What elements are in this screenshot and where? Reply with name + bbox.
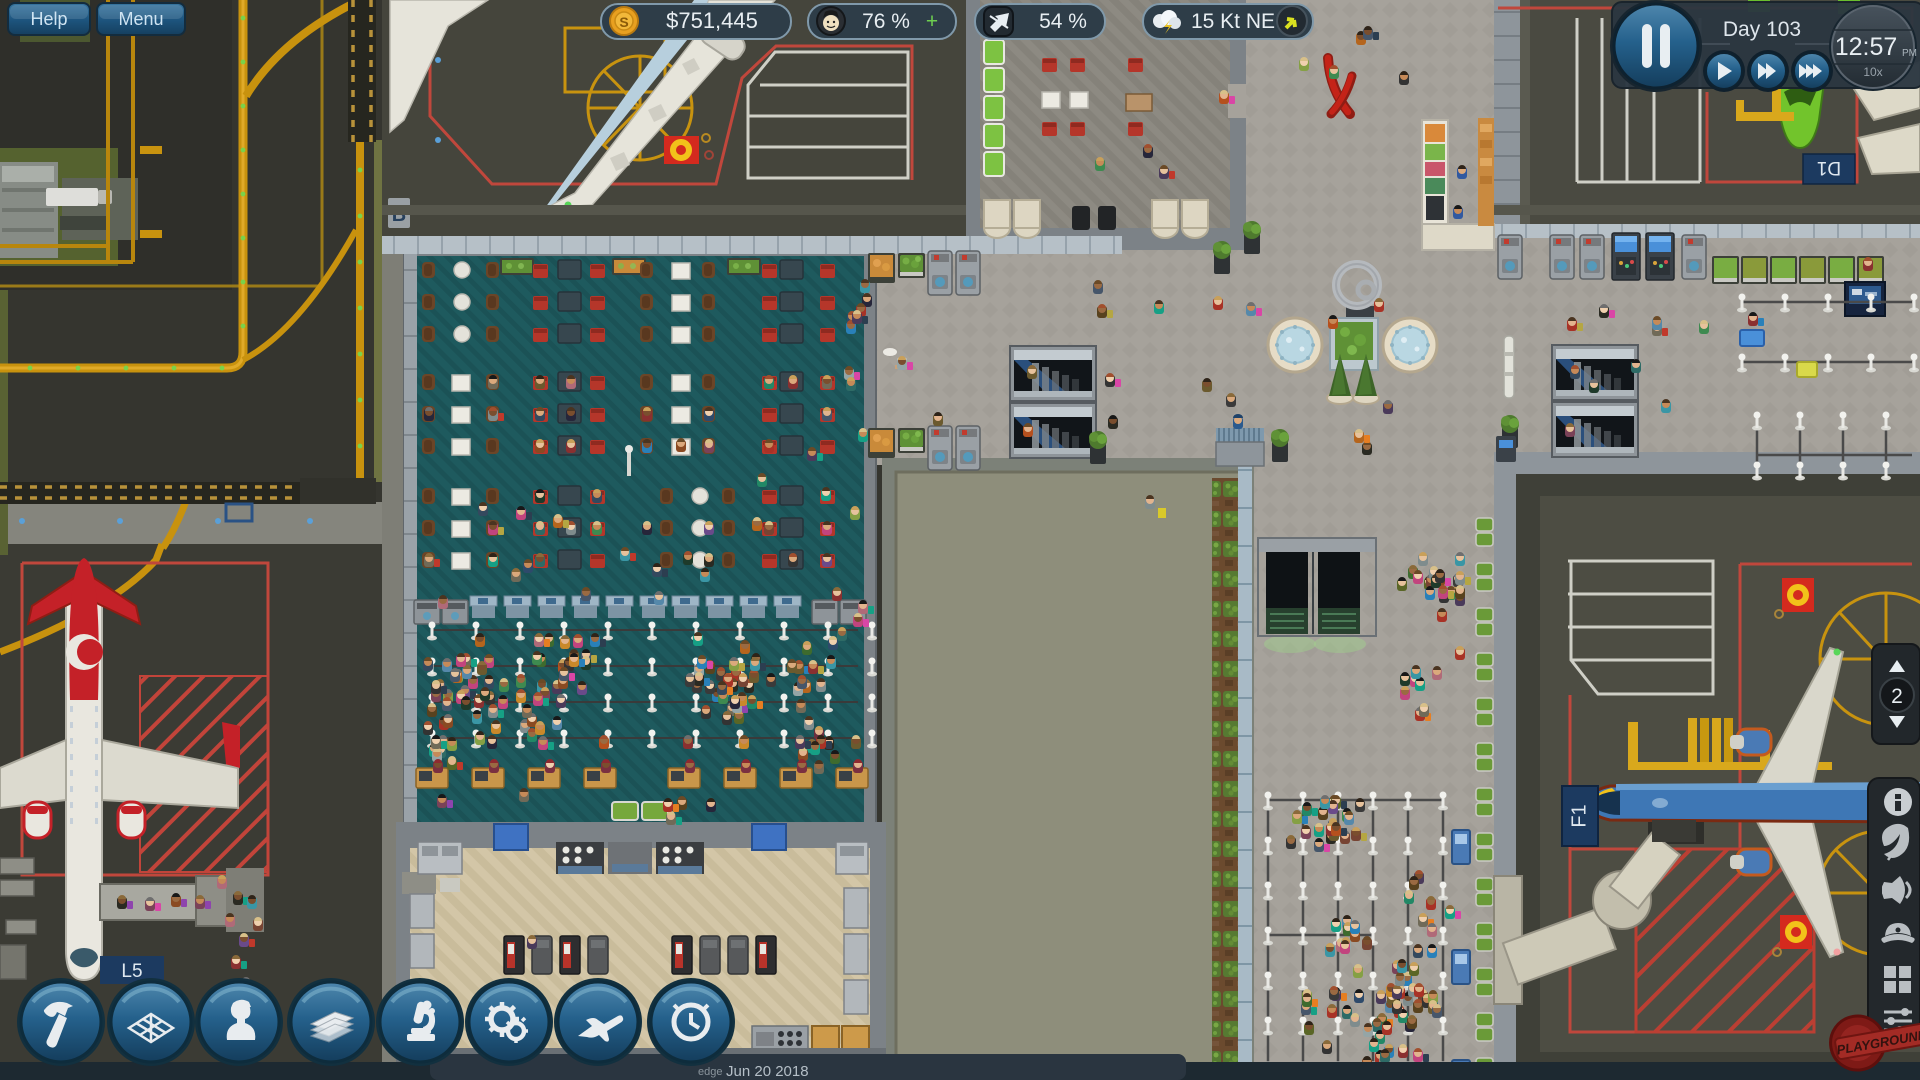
svg-text:10x: 10x xyxy=(1863,65,1882,79)
svg-text:PM: PM xyxy=(1902,48,1917,59)
svg-text:54 %: 54 % xyxy=(1039,10,1087,33)
svg-text:F1: F1 xyxy=(1568,804,1590,827)
svg-text:S: S xyxy=(619,14,628,30)
svg-text:2: 2 xyxy=(1891,685,1903,708)
svg-text:Day 103: Day 103 xyxy=(1723,18,1801,41)
svg-text:12:57: 12:57 xyxy=(1835,33,1898,61)
svg-text:$751,445: $751,445 xyxy=(666,8,758,33)
svg-text:+: + xyxy=(926,10,938,33)
svg-text:Jun 20 2018: Jun 20 2018 xyxy=(726,1063,809,1080)
svg-text:D1: D1 xyxy=(1817,157,1841,178)
svg-text:edge: edge xyxy=(698,1066,722,1078)
svg-text:15 Kt NE: 15 Kt NE xyxy=(1191,10,1275,33)
svg-text:Help: Help xyxy=(30,9,67,29)
svg-text:L5: L5 xyxy=(121,961,142,982)
svg-text:Menu: Menu xyxy=(118,9,163,29)
svg-text:76 %: 76 % xyxy=(862,10,910,33)
